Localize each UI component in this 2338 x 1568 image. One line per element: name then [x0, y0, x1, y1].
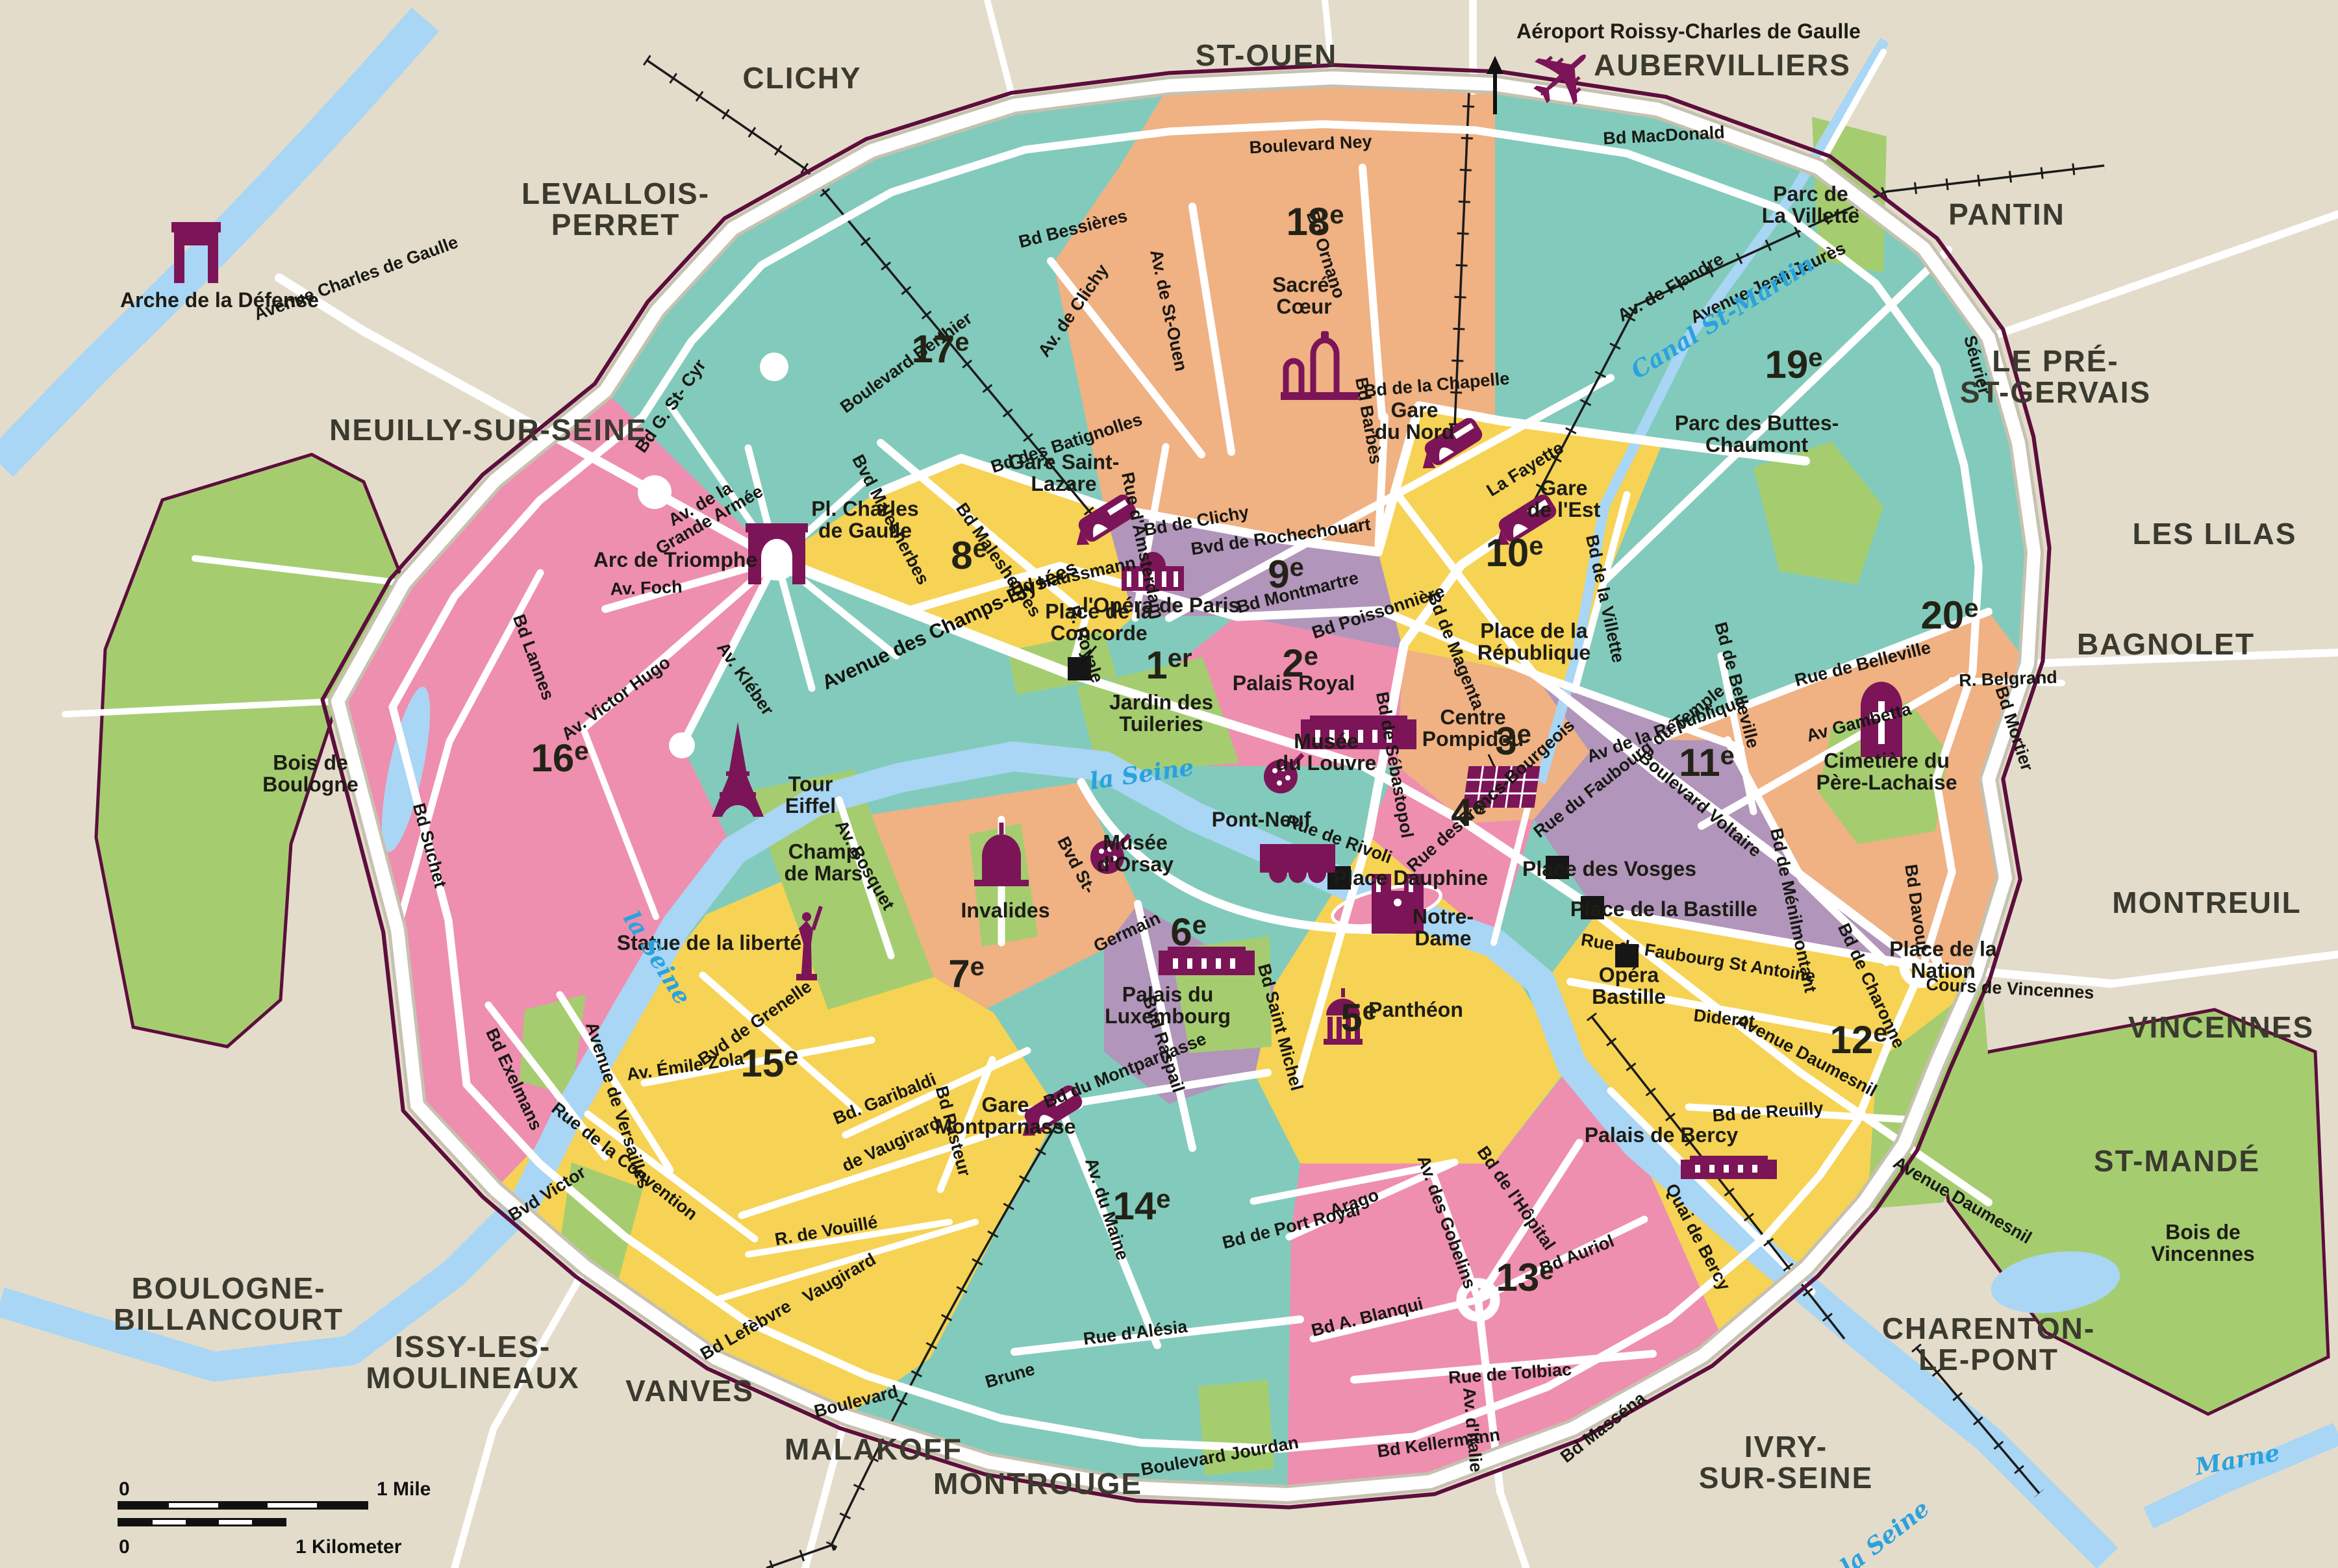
landmark-label-palais-de-bercy: Palais de Bercy — [1585, 1123, 1739, 1147]
paris-map: ✈ CLICHYST-OUENAUBERVILLIERSPANTINLE PRÉ… — [0, 0, 2338, 1568]
suburb-label-clichy: CLICHY — [742, 61, 861, 95]
suburb-label-montreuil: MONTREUIL — [2112, 886, 2301, 919]
landmark-label-place-de-la-r-publique: Place de laRépublique — [1477, 619, 1590, 664]
landmark-label-parc-de-la-villette: Parc deLa Villette — [1762, 182, 1860, 227]
kilometer-bar — [118, 1518, 286, 1526]
landmark-label-arc-de-triomphe: Arc de Triomphe — [594, 548, 758, 571]
suburb-label-pantin: PANTIN — [1948, 197, 2065, 231]
suburb-label-boulogne-billancourt: BOULOGNE-BILLANCOURT — [114, 1271, 344, 1336]
suburb-label-vincennes: VINCENNES — [2128, 1010, 2314, 1044]
suburb-label-issy-les-moulineaux: ISSY-LES-MOULINEAUX — [366, 1330, 579, 1395]
interchange-circle — [669, 732, 695, 758]
road — [455, 1267, 586, 1568]
scale-zero-km: 0 — [119, 1536, 130, 1558]
landmark-label-bois-de-vincennes: Bois deVincennes — [2151, 1221, 2254, 1265]
road — [1500, 1492, 1526, 1568]
suburb-label-bagnolet: BAGNOLET — [2077, 627, 2255, 661]
street-label-av-foch: Av. Foch — [610, 577, 683, 599]
suburb-label-aubervilliers: AUBERVILLIERS — [1594, 48, 1851, 82]
landmark-label-place-des-vosges: Place des Vosges — [1522, 857, 1696, 880]
interchange-circle — [760, 353, 788, 381]
landmark-label-invalides: Invalides — [961, 899, 1050, 922]
pont-neuf-bridge-icon — [1260, 844, 1335, 883]
suburb-label-levallois-perret: LEVALLOIS-PERRET — [522, 177, 710, 242]
paris-map-canvas: ✈ CLICHYST-OUENAUBERVILLIERSPANTINLE PRÉ… — [0, 0, 2338, 1568]
suburb-label-les-lilas: LES LILAS — [2132, 517, 2296, 551]
landmark-label-place-de-la-concorde: Place de laConcorde — [1045, 600, 1153, 645]
landmark-label-bois-de-boulogne: Bois deBoulogne — [262, 751, 358, 796]
landmark-label-jardin-des-tuileries: Jardin desTuileries — [1109, 691, 1213, 736]
suburb-label-vanves: VANVES — [625, 1374, 754, 1408]
interchange-circle — [638, 475, 672, 509]
suburb-label-ivry-sur-seine: IVRY-SUR-SEINE — [1699, 1430, 1873, 1495]
airport-label: Aéroport Roissy-Charles de Gaulle — [1516, 19, 1861, 43]
landmark-label-palais-du-luxembourg: Palais duLuxembourg — [1105, 983, 1231, 1028]
landmark-label-op-ra-bastille: OpéraBastille — [1592, 964, 1666, 1008]
landmark-label-panth-on: Panthéon — [1368, 998, 1463, 1021]
scale-kilometer-label: 1 Kilometer — [295, 1536, 402, 1558]
landmark-label-mus-e-d-orsay: Muséed'Orsay — [1097, 831, 1174, 876]
scale-bar: 0 1 Mile 0 1 Kilometer — [118, 1478, 431, 1558]
road — [2112, 954, 2338, 984]
suburb-label-montrouge: MONTROUGE — [933, 1467, 1142, 1500]
suburb-label-st-ouen: ST-OUEN — [1196, 38, 1337, 72]
palais-de-bercy-icon — [1681, 1156, 1777, 1179]
mile-bar — [118, 1501, 368, 1510]
suburb-label-malakoff: MALAKOFF — [785, 1432, 962, 1466]
road — [987, 0, 1014, 105]
water-label-la-seine: la Seine — [1835, 1495, 1935, 1568]
suburb-label-neuilly-sur-seine: NEUILLY-SUR-SEINE — [329, 413, 647, 447]
suburb-label-st-mand-: ST-MANDÉ — [2094, 1144, 2260, 1178]
scale-zero-mile: 0 — [119, 1478, 130, 1500]
landmark-label-tour-eiffel: TourEiffel — [785, 773, 836, 817]
landmark-label-cimeti-re-du-p-re-lachaise: Cimetière duPère-Lachaise — [1816, 749, 1957, 794]
landmark-label-place-de-la-bastille: Place de la Bastille — [1570, 897, 1757, 921]
landmark-label-notre-dame: Notre-Dame — [1413, 905, 1474, 950]
street-label-r-belgrand: R. Belgrand — [1959, 667, 2057, 690]
road — [1989, 214, 2338, 338]
scale-mile-label: 1 Mile — [377, 1478, 431, 1500]
